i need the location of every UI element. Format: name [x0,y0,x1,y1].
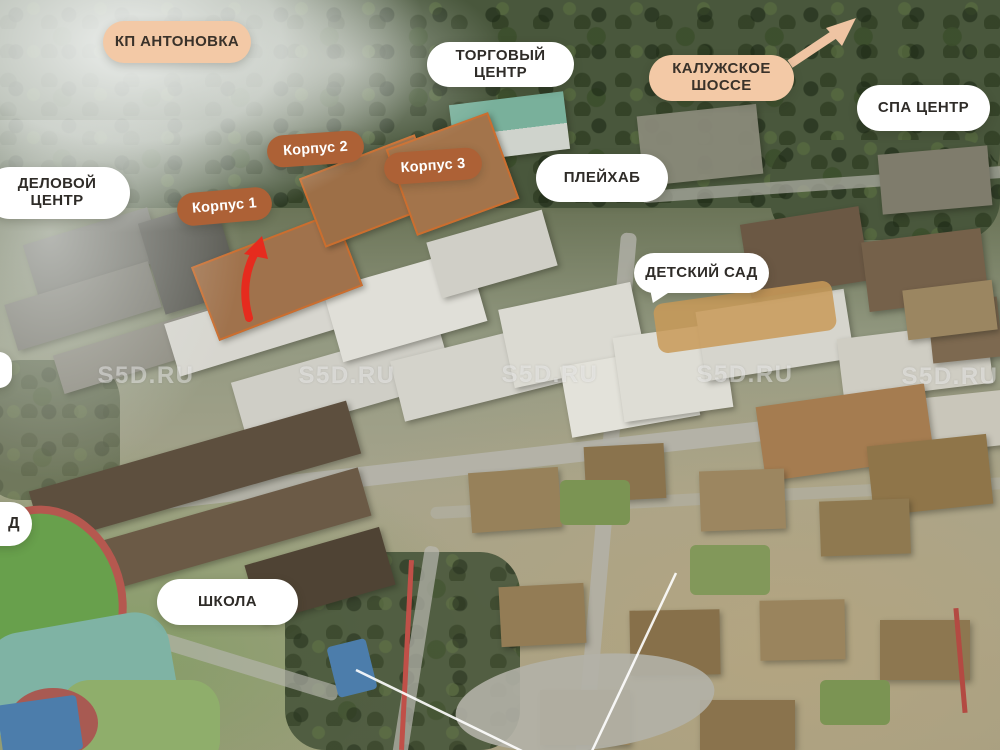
label-text: ШКОЛА [198,594,257,611]
label-text: Д [8,515,20,533]
label-text: ДЕЛОВОЙ [18,176,97,193]
label-kindergarten[interactable]: ДЕТСКИЙ САД [634,253,769,293]
label-school[interactable]: ШКОЛА [157,579,298,625]
label-korpus-3[interactable]: Корпус 3 [383,147,483,186]
building-block [498,583,586,647]
label-text: КП АНТОНОВКА [115,34,239,51]
courtyard-green [560,480,630,525]
label-text: СПА ЦЕНТР [878,100,969,117]
building-block [700,700,795,750]
label-text: ЦЕНТР [474,65,527,82]
watermark: S5D.RU [501,361,598,389]
building-block [878,145,993,214]
label-text: Корпус 3 [400,156,466,177]
label-playhub[interactable]: ПЛЕЙХАБ [536,154,668,202]
building-block [699,469,786,532]
label-kp-antonovka[interactable]: КП АНТОНОВКА [103,21,251,63]
sports-court [0,695,83,750]
label-text: ШОССЕ [691,78,751,95]
label-text: ПЛЕЙХАБ [564,170,641,187]
label-text: ЦЕНТР [31,193,84,210]
watermark: S5D.RU [298,362,395,390]
label-text: Корпус 1 [192,196,258,218]
label-kaluzhskoe-shosse[interactable]: КАЛУЖСКОЕ ШОССЕ [649,55,794,101]
label-text: ДЕТСКИЙ САД [645,265,758,282]
watermark: S5D.RU [97,362,194,390]
label-text: ТОРГОВЫЙ [456,48,546,65]
courtyard-green [820,680,890,725]
watermark: S5D.RU [696,361,793,389]
courtyard-green [690,545,770,595]
label-korpus-2[interactable]: Корпус 2 [266,130,365,169]
label-spa-center[interactable]: СПА ЦЕНТР [857,85,990,131]
building-block [468,467,562,533]
building-block [759,599,845,660]
label-shopping-center[interactable]: ТОРГОВЫЙ ЦЕНТР [427,42,574,87]
watermark: S5D.RU [901,363,998,391]
masterplan-render: S5D.RU S5D.RU S5D.RU S5D.RU S5D.RU КП АН… [0,0,1000,750]
label-text: Корпус 2 [283,139,349,160]
label-business-center[interactable]: ДЕЛОВОЙ ЦЕНТР [0,167,130,219]
building-block [819,498,911,556]
label-text: КАЛУЖСКОЕ [672,61,770,78]
